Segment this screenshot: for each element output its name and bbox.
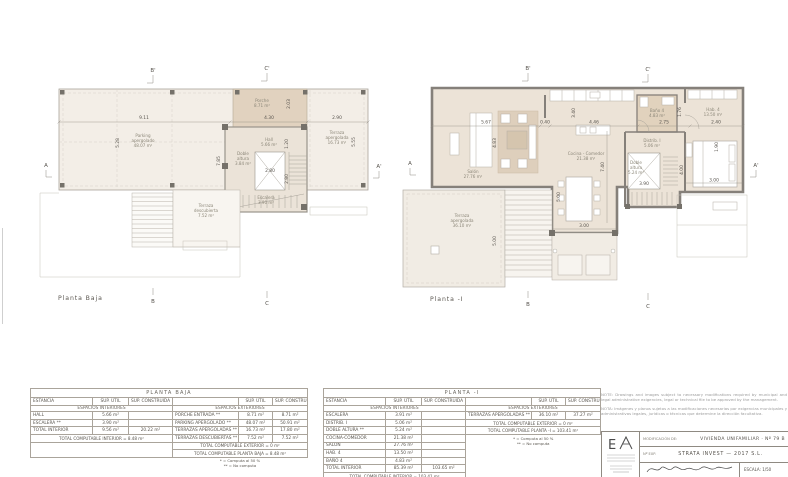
logo-triangle-icon (620, 437, 632, 449)
project-value: VIVIENDA UNIFAMILIAR · Nº 79 B (700, 437, 785, 442)
table-row: TOTAL INTERIOR9.56 m²20.22 m² TERRAZAS A… (31, 427, 308, 435)
dim-cama-width: 3.00 (709, 178, 719, 184)
logo-letter: E (608, 438, 616, 453)
logo-microprint (607, 455, 635, 472)
table-footnotes: * = Computa al 50 %** = No computa (466, 434, 601, 477)
dim-terraza-height: 5.00 (492, 236, 498, 246)
marker-b: B (151, 299, 155, 305)
project-label: MODIFICACIÓN DE: (643, 437, 677, 441)
dim-porche-height: 2.03 (286, 99, 292, 109)
dim-dorm-width: 2.40 (711, 120, 721, 126)
dim-cocina-width: 4.46 (589, 120, 599, 126)
note-english: NOTE: Drawings and images subject to nec… (601, 392, 787, 403)
title-block: E MODIFICACIÓN DE: VIVIENDA UNIFAMILIAR … (601, 431, 788, 477)
table-row: ESCALERA3.91 m² TERRAZAS APERGOLADAS **3… (324, 412, 601, 420)
marker-c-prime: C' (264, 66, 269, 72)
exterior-steps (505, 190, 552, 277)
svg-text:4.83 m²: 4.83 m² (649, 113, 665, 118)
dim-kitchen-height: 3.40 (571, 108, 577, 118)
terraza-apergolada (403, 190, 505, 287)
table-row: DISTRIB. I5.06 m² TOTAL COMPUTABLE EXTER… (324, 419, 601, 427)
project-row: MODIFICACIÓN DE: VIVIENDA UNIFAMILIAR · … (640, 432, 788, 447)
svg-text:7.52 m²: 7.52 m² (198, 213, 214, 218)
promoter-label: Nº EXP. (643, 452, 656, 456)
dim-bano-width: 2.75 (659, 120, 669, 126)
table-row: TOTAL COMPUTABLE INTERIOR = 8.48 m² TERR… (31, 434, 308, 442)
marker-c: C (646, 304, 650, 310)
plan-planta-baja: B' C' A A' B C 9.11 5.28 7.85 4.30 2.03 … (40, 55, 400, 305)
promoter-value: STRATA INVEST — 2017 S.L. (678, 452, 763, 457)
marker-b-prime: B' (525, 66, 530, 72)
scale-value: ESCALA: 1/50 (739, 463, 788, 477)
marker-a: A (408, 161, 412, 167)
svg-text:8.71 m²: 8.71 m² (254, 103, 270, 108)
dim-mesa-height: 5.00 (556, 192, 562, 202)
dim-porche-width: 4.30 (264, 115, 274, 121)
svg-text:3.84 m²: 3.84 m² (235, 161, 251, 166)
promoter-row: Nº EXP. STRATA INVEST — 2017 S.L. (640, 447, 788, 462)
plan-planta-menos-1: B' C' A A' B C 5.67 0.40 4.46 2.75 2.40 … (400, 55, 788, 315)
table-planta-menos-1: PLANTA -I ESTANCIA SUP. ÚTIL SUP. CONSTR… (323, 388, 601, 477)
dim-stair-width: 2.80 (265, 168, 275, 174)
marker-c: C (265, 301, 269, 307)
marker-a-prime: A' (376, 164, 381, 170)
svg-text:5.24 m²: 5.24 m² (628, 170, 644, 175)
dim-stair-height: 2.80 (284, 174, 290, 184)
svg-text:48.07 m²: 48.07 m² (134, 143, 153, 148)
marker-b-prime: B' (150, 68, 155, 74)
dim-comedor-height: 7.40 (600, 162, 606, 172)
table-row: TOTAL COMPUTABLE EXTERIOR = 0 m² (31, 442, 308, 450)
svg-text:16.73 m²: 16.73 m² (328, 140, 347, 145)
dim-terraza-width: 2.90 (332, 115, 342, 121)
porche-area (233, 89, 307, 127)
svg-text:3.90 m²: 3.90 m² (258, 200, 274, 205)
dim-parking-width: 9.11 (139, 115, 149, 121)
parking-pergola-structure (59, 89, 368, 190)
marker-c-prime: C' (645, 67, 650, 73)
table-row: HALL5.66 m² PORCHE ENTRADA **8.71 m²8.71… (31, 412, 308, 420)
svg-text:5.66 m²: 5.66 m² (261, 142, 277, 147)
title-block-notes: NOTE: Drawings and images subject to nec… (601, 392, 787, 419)
sheet-edge-tick (2, 228, 3, 324)
dim-mesa-width: 3.00 (579, 223, 589, 229)
dim-hall-height: 1.20 (284, 139, 290, 149)
dim-salon-width: 5.67 (481, 120, 491, 126)
dim-terraza-height: 5.55 (351, 137, 357, 147)
table-planta-baja: PLANTA BAJA ESTANCIA SUP. ÚTIL SUP. CONS… (30, 388, 308, 469)
svg-text:21.38 m²: 21.38 m² (577, 156, 596, 161)
svg-text:36.10 m²: 36.10 m² (453, 223, 472, 228)
lower-porch (552, 233, 617, 280)
dim-mid-height: 7.85 (216, 156, 222, 166)
architect-signature (640, 463, 739, 477)
dim-stair-height: 4.00 (679, 165, 685, 175)
marker-a: A (44, 163, 48, 169)
title-block-fields: MODIFICACIÓN DE: VIVIENDA UNIFAMILIAR · … (640, 432, 788, 477)
table-row: DOBLE ALTURA **5.24 m² TOTAL COMPUTABLE … (324, 427, 601, 435)
dim-parking-height: 5.28 (115, 138, 121, 148)
dim-stair-width: 3.90 (639, 181, 649, 187)
dim-bano-height: 1.76 (677, 107, 683, 117)
table-row: ESCALERA **3.90 m² PARKING APERGOLADO **… (31, 419, 308, 427)
plan-title-baja: Planta Baja (58, 295, 103, 302)
plan-title-menos-1: Planta -I (430, 296, 464, 303)
drawing-sheet: B' C' A A' B C 9.11 5.28 7.85 4.30 2.03 … (0, 0, 788, 477)
note-spanish: NOTA: Imágenes y planos sujetos a las mo… (601, 406, 787, 417)
table-row: COCINA-COMEDOR21.38 m² * = Computa al 50… (324, 434, 601, 442)
signature-row: ESCALA: 1/50 (640, 463, 788, 477)
svg-text:5.06 m²: 5.06 m² (644, 143, 660, 148)
svg-text:13.50 m²: 13.50 m² (704, 112, 723, 117)
dim-gap-width: 0.40 (540, 120, 550, 126)
table-title: PLANTA BAJA (31, 389, 308, 398)
marker-a-prime: A' (753, 163, 758, 169)
svg-text:27.76 m²: 27.76 m² (464, 174, 483, 179)
table-footnotes: * = Computa al 50 %** = No computa (31, 457, 308, 469)
table-title: PLANTA -I (324, 389, 601, 398)
dim-salon-height: 4.83 (492, 138, 498, 148)
dim-cama-height: 1.90 (714, 142, 720, 152)
studio-logo: E (602, 432, 640, 477)
marker-b: B (526, 302, 530, 308)
right-lower-terrace (677, 195, 747, 257)
